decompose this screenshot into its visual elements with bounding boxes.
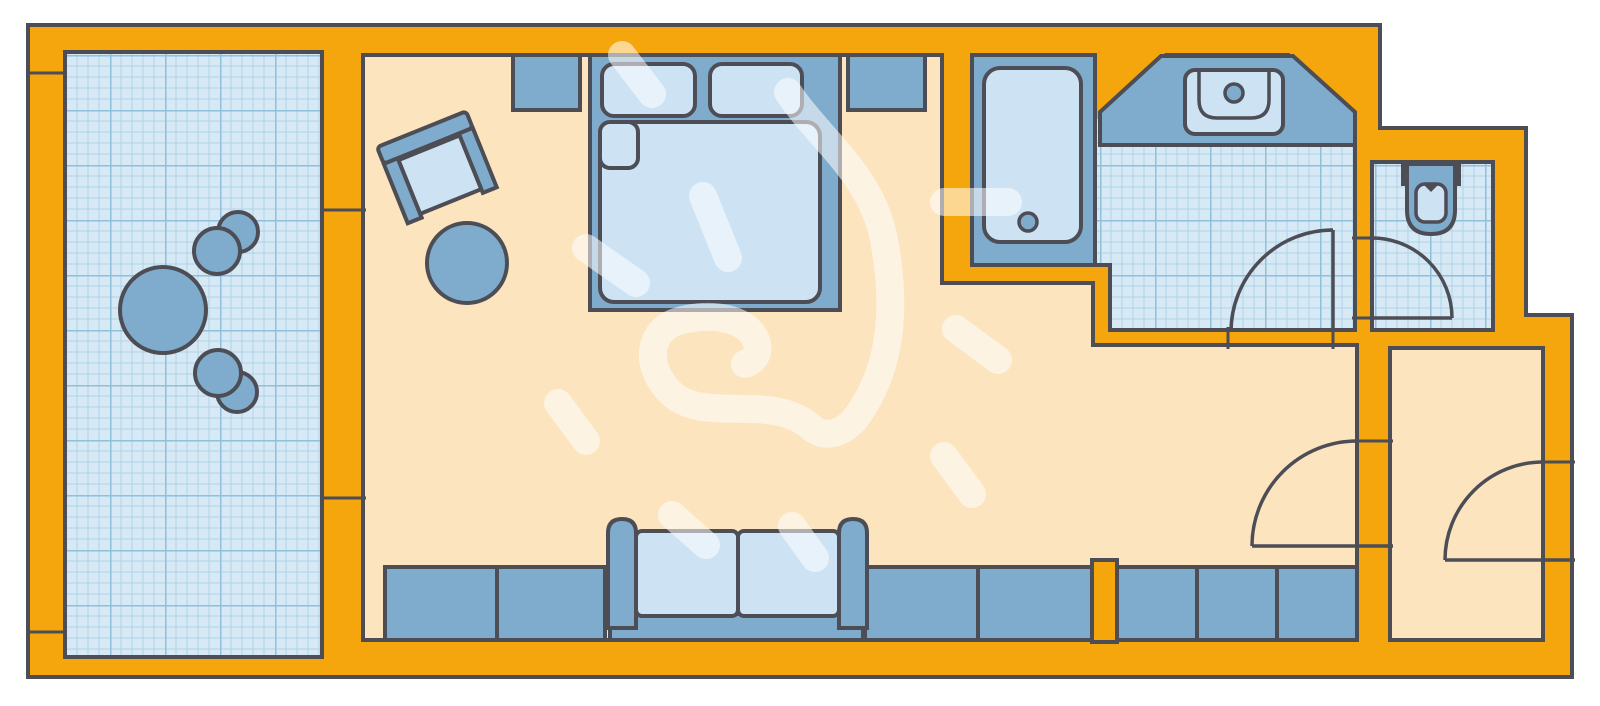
balcony-table: [120, 267, 206, 353]
ottoman: [427, 223, 507, 303]
floor-plan-svg: [0, 0, 1600, 706]
room-balcony: [65, 52, 322, 657]
room-hall: [1390, 348, 1543, 640]
wardrobe-row-right: [1117, 567, 1357, 640]
sofa: [608, 519, 867, 640]
toilet: [1403, 162, 1459, 234]
nightstand-right: [848, 55, 925, 110]
wall-pillar: [1092, 560, 1117, 642]
floor-plan-canvas: [0, 0, 1600, 706]
nightstand-left: [513, 55, 580, 110]
bathtub: [972, 55, 1095, 265]
sink: [1185, 70, 1283, 134]
